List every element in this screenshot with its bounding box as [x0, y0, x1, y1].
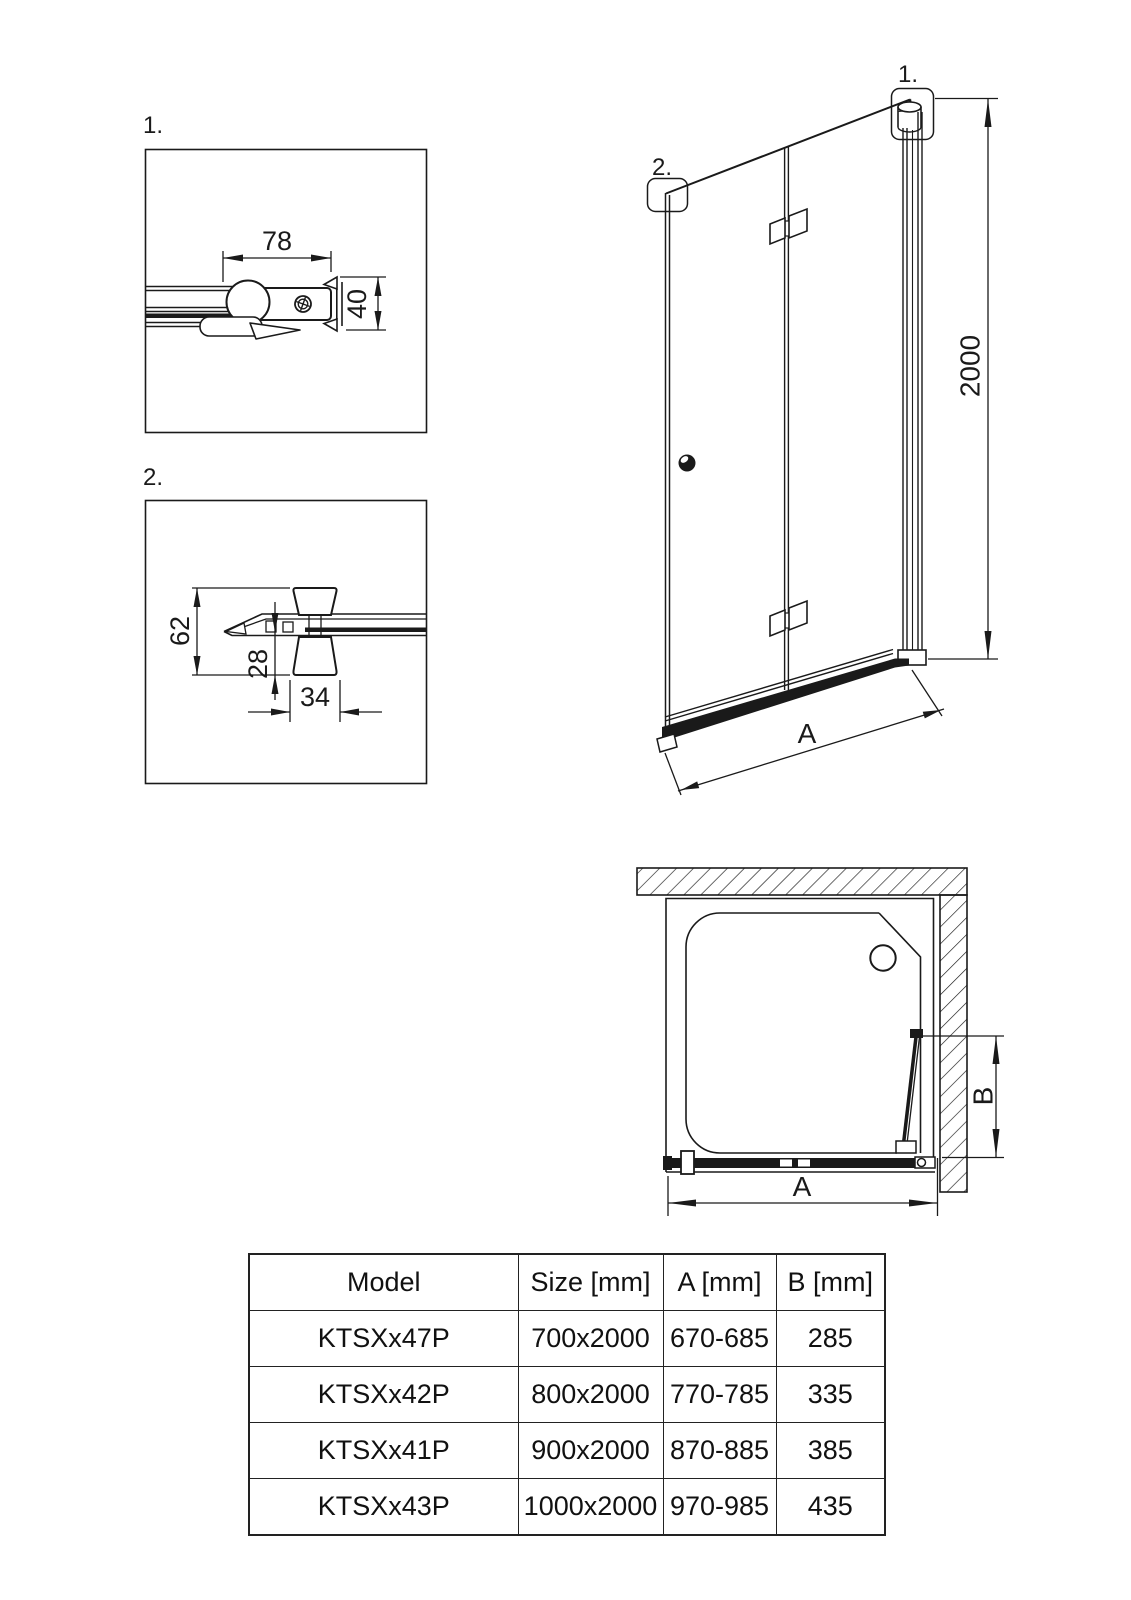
detail-2-callout-label: 2. — [143, 464, 163, 491]
table-cell-b: 435 — [776, 1479, 885, 1536]
table-cell-model: KTSXx43P — [249, 1479, 518, 1536]
dim-28: 28 — [243, 602, 279, 700]
col-header-b: B [mm] — [776, 1254, 885, 1311]
dim-40-label: 40 — [342, 289, 372, 319]
table-cell-b: 385 — [776, 1423, 885, 1479]
dim-34-label: 34 — [300, 682, 330, 712]
detail-2-section: 2. 62 2 — [143, 464, 427, 784]
spec-table: Model Size [mm] A [mm] B [mm] KTSXx47P 7… — [248, 1253, 886, 1536]
elevation-view: 1. 2. — [648, 61, 999, 795]
bottom-sill — [657, 650, 909, 753]
table-row: KTSXx47P 700x2000 670-685 285 — [249, 1311, 885, 1367]
table-cell-size: 1000x2000 — [518, 1479, 663, 1536]
dim-34: 34 — [248, 680, 382, 722]
col-header-model: Model — [249, 1254, 518, 1311]
knob-top — [293, 588, 336, 615]
dim-2000-label: 2000 — [955, 335, 986, 397]
plan-view: A B — [637, 868, 1004, 1216]
elevation-callout-2: 2. — [652, 154, 672, 181]
table-cell-model: KTSXx47P — [249, 1311, 518, 1367]
detail-1-section: 1. — [143, 112, 427, 433]
table-cell-size: 800x2000 — [518, 1367, 663, 1423]
detail-1-callout-label: 1. — [143, 112, 163, 139]
table-cell-a: 870-885 — [663, 1423, 776, 1479]
elevation-callout-1: 1. — [898, 61, 918, 88]
dim-40: 40 — [340, 277, 386, 330]
table-row: KTSXx41P 900x2000 870-885 385 — [249, 1423, 885, 1479]
door-pivot-bracket — [896, 1141, 916, 1153]
seal-lip — [250, 323, 300, 339]
callout-box-2 — [648, 179, 688, 212]
table-cell-model: KTSXx42P — [249, 1367, 518, 1423]
table-cell-size: 700x2000 — [518, 1311, 663, 1367]
wall-profile — [898, 102, 926, 665]
dim-A-elevation-label: A — [798, 718, 817, 749]
table-cell-size: 900x2000 — [518, 1423, 663, 1479]
col-header-size: Size [mm] — [518, 1254, 663, 1311]
technical-drawing-page: 1. — [0, 0, 1131, 1600]
dim-62-label: 62 — [165, 616, 195, 646]
table-header-row: Model Size [mm] A [mm] B [mm] — [249, 1254, 885, 1311]
table-cell-a: 670-685 — [663, 1311, 776, 1367]
drawing-canvas: 1. — [0, 0, 1131, 1245]
drain-icon — [870, 945, 895, 970]
table-cell-b: 285 — [776, 1311, 885, 1367]
dim-B-plan-label: B — [968, 1087, 999, 1106]
door-panel-angled — [903, 1037, 916, 1148]
table-cell-a: 970-985 — [663, 1479, 776, 1536]
knob-bottom — [293, 637, 336, 675]
dim-78-label: 78 — [262, 226, 292, 256]
shower-tray — [666, 899, 935, 1173]
wall-top — [637, 868, 967, 895]
handle-knob — [679, 455, 696, 472]
table-cell-b: 335 — [776, 1367, 885, 1423]
folded-door — [896, 1029, 923, 1153]
table-row: KTSXx42P 800x2000 770-785 335 — [249, 1367, 885, 1423]
col-header-a: A [mm] — [663, 1254, 776, 1311]
wall-right — [940, 895, 967, 1192]
dim-78: 78 — [223, 226, 331, 282]
dim-A-plan-label: A — [793, 1171, 812, 1202]
sill-clamp — [681, 1151, 694, 1174]
table-cell-a: 770-785 — [663, 1367, 776, 1423]
glass-bar-section — [224, 614, 426, 636]
table-cell-model: KTSXx41P — [249, 1423, 518, 1479]
dim-2000: 2000 — [928, 99, 998, 660]
dim-28-label: 28 — [243, 649, 273, 679]
table-row: KTSXx43P 1000x2000 970-985 435 — [249, 1479, 885, 1536]
